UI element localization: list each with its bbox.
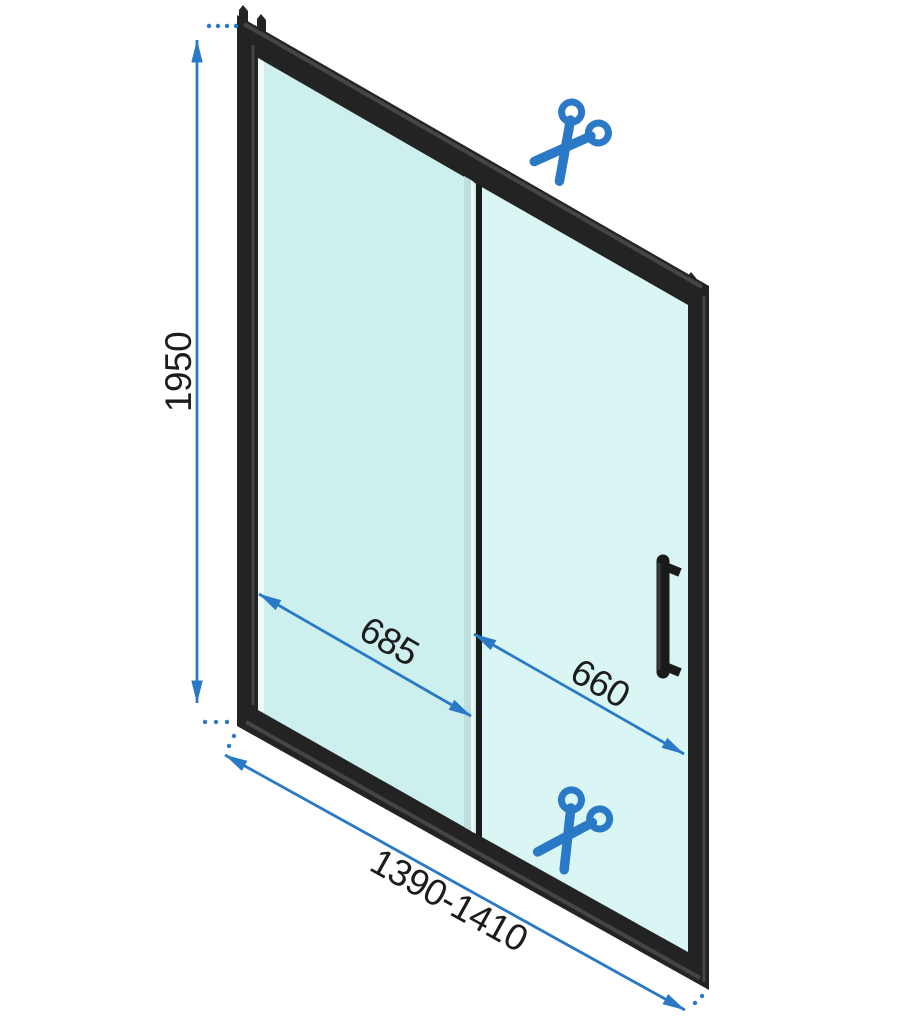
shower-door-dimension-diagram: 1950 685 660 1390-1410 [0, 0, 900, 1036]
panel-divider [476, 183, 482, 838]
panel-edge-strip-light [471, 180, 474, 833]
height-extension-dots-top [207, 24, 238, 28]
panel-edge-strip [464, 176, 471, 831]
height-extension-dots-bottom [203, 720, 229, 724]
overall-width-dots-right [693, 994, 704, 1005]
diagram-canvas: 1950 685 660 1390-1410 [0, 0, 900, 1036]
height-dimension: 1950 [158, 24, 238, 724]
scissors-icon-top [526, 98, 613, 188]
glass-left-edge-highlight [258, 58, 264, 713]
height-dimension-label: 1950 [158, 332, 199, 412]
overall-width-dots-left [227, 734, 236, 748]
door-assembly [237, 5, 709, 990]
glass-fixed-panel [258, 58, 480, 836]
